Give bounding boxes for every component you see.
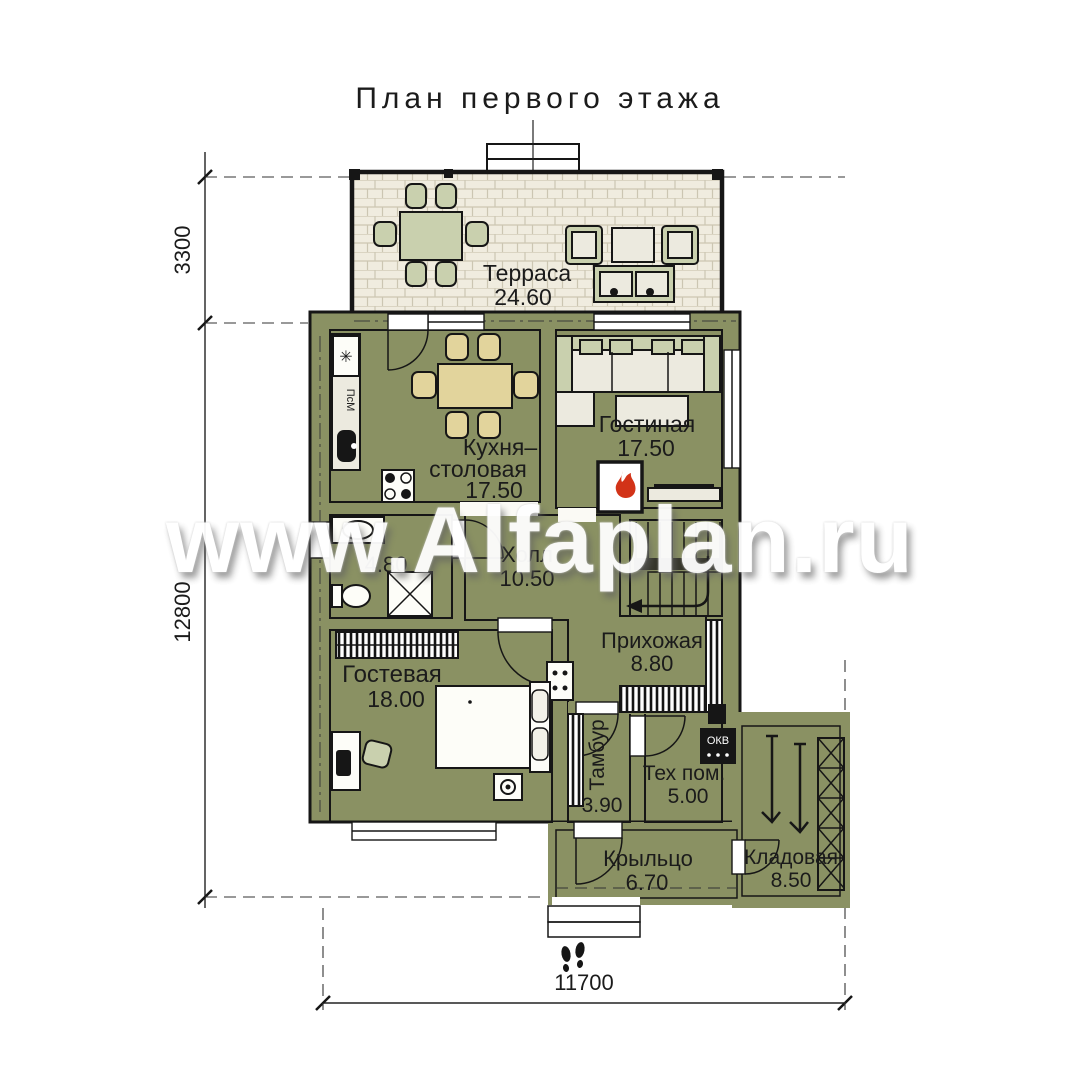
room-label-hall: Холл — [501, 542, 553, 567]
room-label-tech: Тех пом. — [643, 762, 726, 785]
tv-console — [648, 486, 720, 501]
room-label-guest: Гостевая — [342, 661, 442, 688]
door-bathroom — [452, 520, 465, 558]
door-entrance — [574, 822, 622, 838]
desk-chair — [361, 739, 392, 769]
door-tambour — [576, 702, 618, 714]
opening-living-hall — [558, 508, 596, 522]
room-label-storage: Кладовая — [744, 846, 838, 869]
tambour-wardrobe — [568, 714, 583, 806]
opening-kitchen-hall — [460, 502, 538, 516]
toilet — [332, 585, 370, 607]
room-label-terrace: Терраса — [483, 260, 571, 286]
room-terrace: Терраса 24.60 — [349, 120, 723, 314]
boiler-pipes — [708, 704, 726, 724]
window-bathroom — [310, 522, 330, 558]
floor-plan-sheet: 3300 12800 11700 — [0, 0, 1080, 1080]
dim-house-width: 11700 — [554, 970, 614, 995]
room-label-hallway: Прихожая — [601, 628, 703, 653]
svg-text:5.00: 5.00 — [668, 785, 709, 808]
room-label-bathroom: 4.80 — [365, 552, 408, 577]
svg-text:3.90: 3.90 — [582, 794, 623, 817]
svg-text:6.70: 6.70 — [626, 870, 669, 895]
boiler-label: ОКВ — [707, 735, 729, 747]
fridge-mark: ✳ — [339, 349, 352, 366]
room-label-porch: Крыльцо — [603, 846, 693, 871]
fireplace — [598, 462, 642, 512]
boiler: ОКВ — [700, 728, 736, 764]
svg-text:24.60: 24.60 — [494, 284, 552, 310]
svg-text:8.80: 8.80 — [631, 651, 674, 676]
guest-bed — [436, 682, 550, 772]
room-hall: Холл 10.50 — [499, 542, 554, 591]
dim-house-depth: 12800 — [170, 581, 195, 642]
door-terrace-kitchen — [388, 314, 428, 330]
svg-text:8.50: 8.50 — [771, 869, 812, 892]
svg-text:17.50: 17.50 — [465, 477, 523, 503]
room-label-tambour: Тамбур — [586, 719, 609, 790]
svg-text:18.00: 18.00 — [367, 686, 425, 712]
svg-text:17.50: 17.50 — [617, 435, 675, 461]
floor-plan-drawing: 3300 12800 11700 — [0, 0, 1080, 1080]
svg-text:10.50: 10.50 — [499, 566, 554, 591]
hallway-wardrobe-bottom — [620, 686, 706, 712]
footprints-icon — [560, 941, 586, 972]
porch-steps — [548, 906, 640, 922]
page-title: План первого этажа — [0, 82, 1080, 116]
room-label-living: Гостиная — [599, 411, 696, 437]
door-tech — [630, 716, 645, 756]
door-guest — [498, 618, 552, 632]
dim-terrace-depth: 3300 — [170, 226, 195, 275]
dishwasher-label: ПсМ — [344, 389, 356, 412]
bath-sink — [343, 521, 373, 539]
hallway-wardrobe-right — [706, 620, 722, 712]
nightstand — [494, 774, 522, 800]
